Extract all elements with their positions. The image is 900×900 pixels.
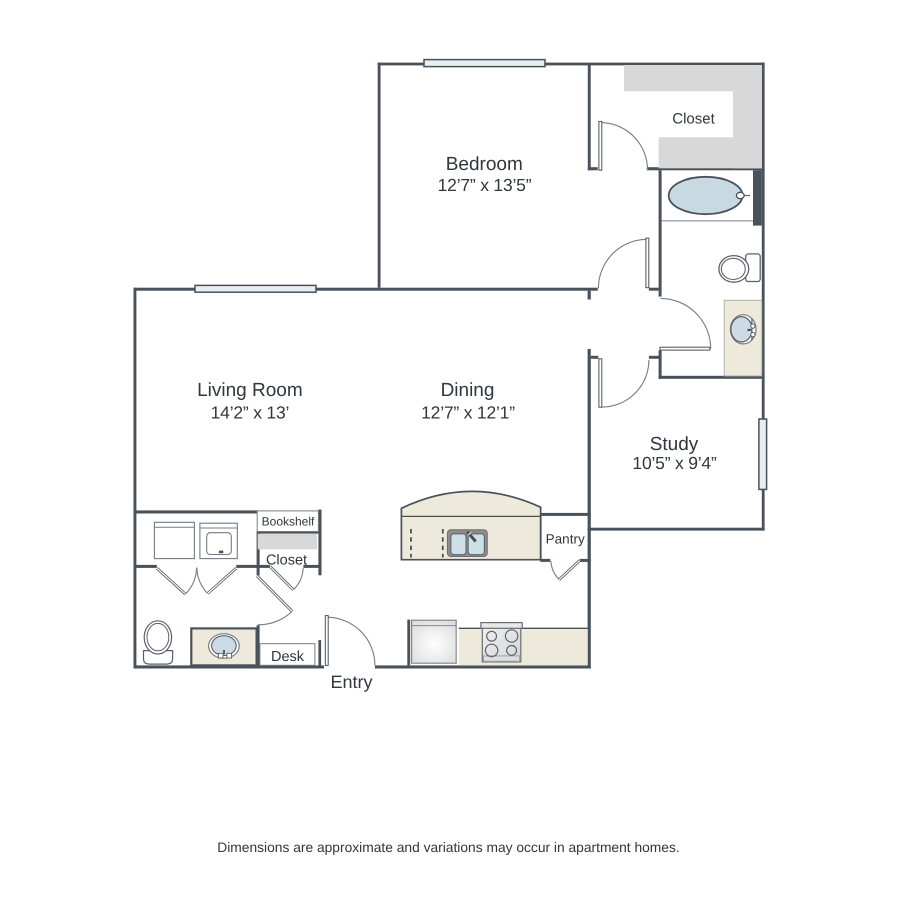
svg-text:Closet: Closet — [266, 553, 307, 569]
svg-text:Pantry: Pantry — [546, 532, 585, 547]
svg-text:Desk: Desk — [271, 649, 305, 665]
svg-text:Bedroom: Bedroom — [446, 154, 523, 175]
svg-text:Closet: Closet — [672, 111, 715, 128]
svg-text:10’5” x 9’4”: 10’5” x 9’4” — [632, 453, 717, 473]
svg-text:12’7” x 13’5”: 12’7” x 13’5” — [438, 175, 532, 195]
svg-text:Living Room: Living Room — [197, 380, 303, 401]
svg-text:12’7” x 12’1”: 12’7” x 12’1” — [421, 403, 515, 423]
svg-text:Bookshelf: Bookshelf — [262, 515, 315, 529]
svg-text:Study: Study — [650, 434, 699, 455]
svg-text:Dining: Dining — [441, 380, 495, 401]
svg-text:Dimensions are approximate and: Dimensions are approximate and variation… — [217, 840, 679, 855]
svg-text:14’2” x 13’: 14’2” x 13’ — [211, 403, 290, 423]
svg-text:Entry: Entry — [330, 672, 372, 692]
